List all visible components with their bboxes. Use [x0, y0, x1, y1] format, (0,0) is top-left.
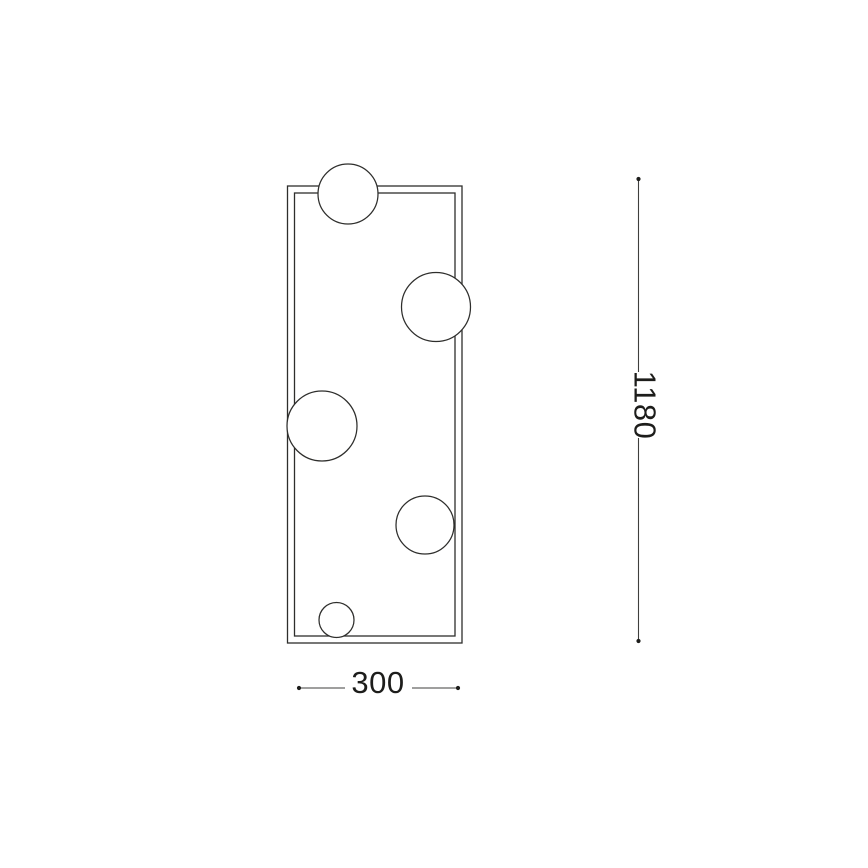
sphere-bottom-small: [319, 603, 354, 638]
width-dimension-endpoint-right: [456, 686, 460, 690]
height-dimension-label: 1180: [628, 371, 663, 440]
sphere-middle-left: [287, 391, 357, 461]
height-dimension-endpoint-bottom: [636, 639, 640, 643]
height-dimension-endpoint-top: [636, 177, 640, 181]
sphere-top: [318, 164, 378, 224]
dimension-drawing: 1180 300: [0, 0, 868, 868]
drawing-canvas: 1180 300: [0, 0, 868, 868]
sphere-lower-right: [396, 496, 454, 554]
width-dimension-endpoint-left: [297, 686, 301, 690]
width-dimension-label: 300: [351, 665, 404, 700]
sphere-upper-right: [402, 273, 471, 342]
